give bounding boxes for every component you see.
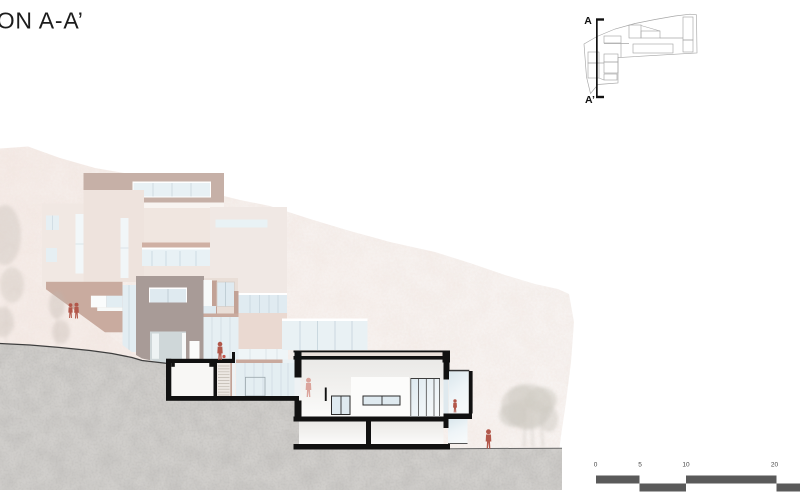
svg-text:10: 10: [682, 462, 690, 469]
svg-text:A: A: [584, 15, 592, 27]
svg-text:SECTION A-A’: SECTION A-A’: [0, 7, 84, 33]
svg-text:A’: A’: [585, 94, 595, 106]
svg-text:20: 20: [771, 462, 779, 469]
svg-text:0: 0: [594, 462, 598, 469]
svg-text:5: 5: [638, 462, 642, 469]
